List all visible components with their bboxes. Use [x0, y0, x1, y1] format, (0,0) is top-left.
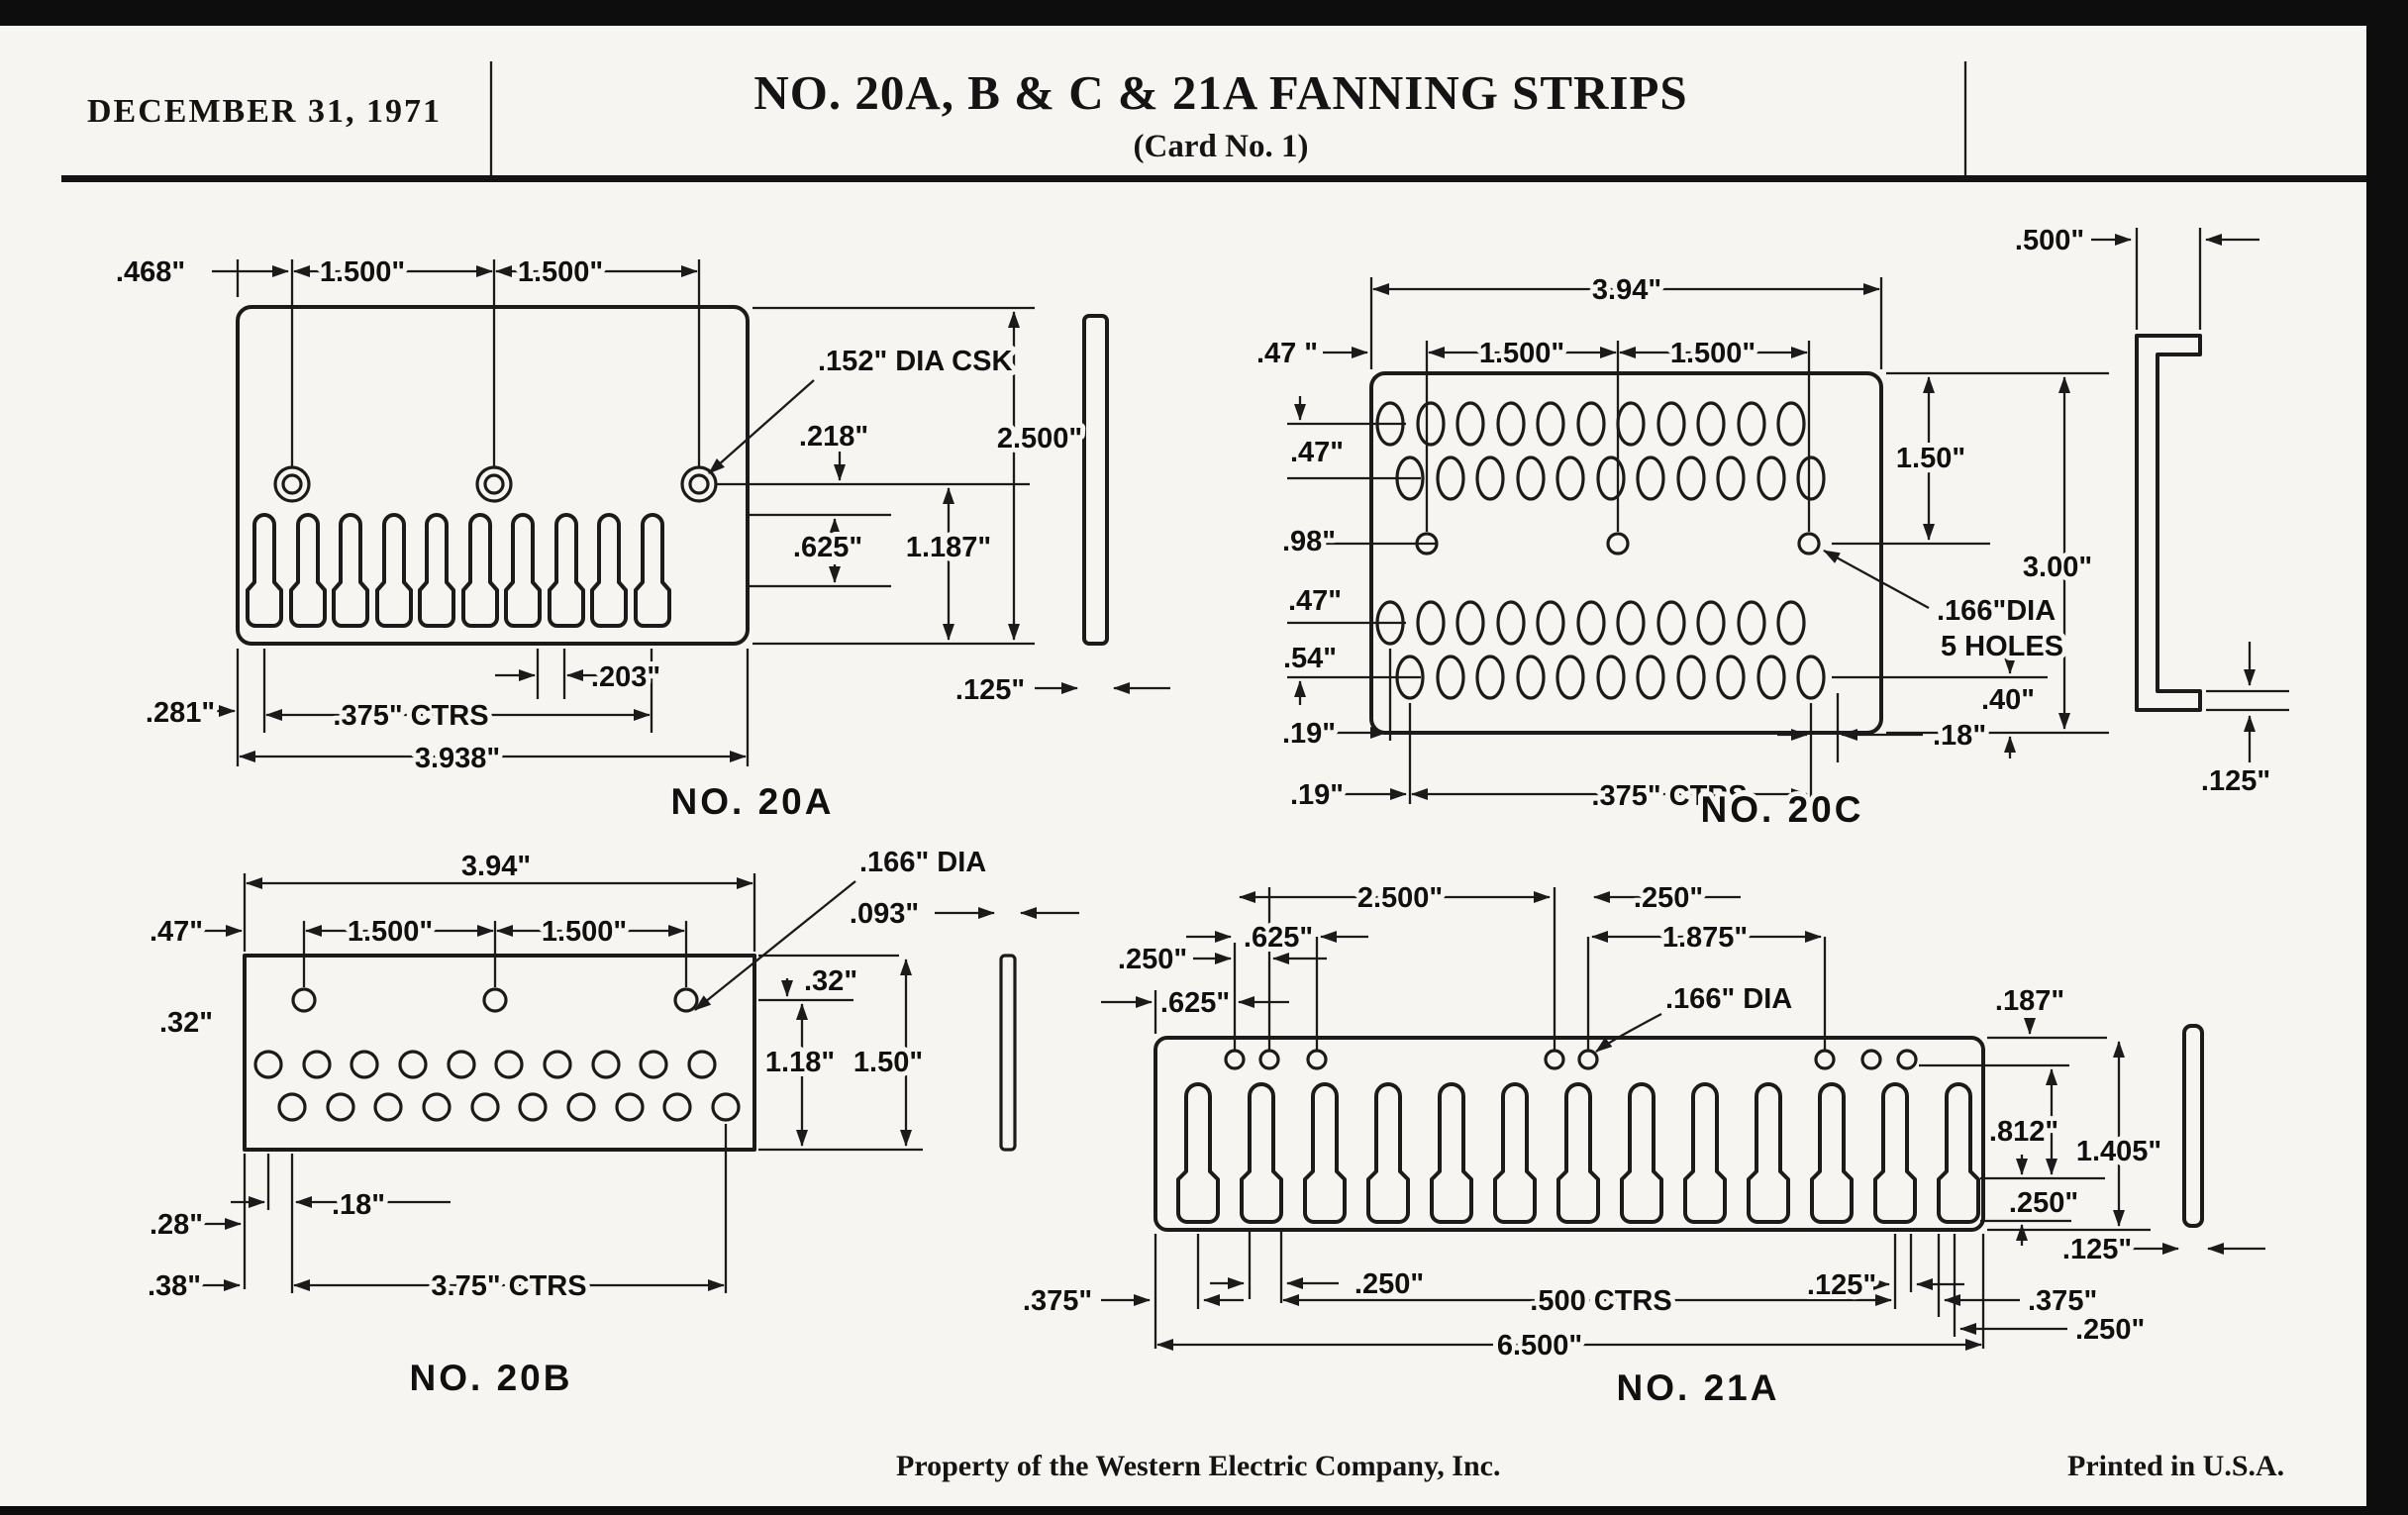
side-view-20b — [1001, 956, 1015, 1150]
mount-holes-20b — [293, 989, 697, 1011]
dim-21a-l625: .625" — [1160, 987, 1230, 1019]
label-no20a: NO. 20A — [671, 781, 835, 822]
page-subtitle: (Card No. 1) — [1134, 129, 1309, 164]
drawing-no20a: .468" 1.500" 1.500" .152" DIA CSK .218" … — [116, 256, 1170, 822]
diagram-canvas: DECEMBER 31, 1971 NO. 20A, B & C & 21A F… — [0, 0, 2408, 1515]
footer-printed-note: Printed in U.S.A. — [2067, 1450, 2284, 1482]
dim-20b-height: 1.50" — [853, 1047, 923, 1078]
dims-21a — [1101, 887, 2265, 1349]
dim-20c-dia-line2: 5 HOLES — [1941, 631, 2063, 662]
comb-slots-21a — [1178, 1084, 1978, 1222]
hole-row-top-20b — [255, 1052, 715, 1077]
label-no20c: NO. 20C — [1701, 789, 1864, 830]
dim-20a-slot-depth: .625" — [793, 532, 862, 563]
scan-edge-top — [0, 0, 2408, 26]
dim-21a-dia: .166" DIA — [1665, 983, 1792, 1015]
dim-21a-t250: .250" — [2009, 1187, 2078, 1219]
csk-holes-20a — [275, 467, 716, 501]
dim-21a-ctrs: .500 CTRS — [1530, 1285, 1671, 1317]
dim-21a-c187: .187" — [1995, 985, 2064, 1017]
dim-20a-hole-drop: .218" — [799, 421, 868, 453]
dim-20c-dia-line1: .166"DIA — [1937, 595, 2056, 627]
footer: Property of the Western Electric Company… — [896, 1450, 2284, 1482]
dim-20b-pitch2: 1.500" — [542, 916, 627, 948]
dim-20a-width: 3.938" — [415, 743, 500, 774]
mount-holes-20c — [1417, 534, 1819, 554]
dim-20c-width: 3.94" — [1592, 274, 1661, 306]
comb-slots-20a — [248, 515, 669, 626]
page-title: NO. 20A, B & C & 21A FANNING STRIPS — [753, 65, 1687, 120]
dim-20c-row3: .47" — [1288, 585, 1342, 617]
dim-20a-edge-margin: .281" — [146, 697, 215, 729]
dim-20b-dia: .166" DIA — [859, 847, 986, 878]
dim-21a-width: 6.500" — [1497, 1330, 1582, 1362]
dim-21a-br250: .250" — [2075, 1314, 2145, 1346]
dim-21a-b250: .250" — [1354, 1268, 1424, 1300]
dim-20c-b18: .18" — [1933, 720, 1986, 752]
dim-20c-row1: .47" — [1290, 437, 1344, 468]
dim-20c-pitch2: 1.500" — [1670, 338, 1756, 369]
dim-20b-row-offset: .32" — [159, 1007, 213, 1039]
side-view-20a — [1084, 316, 1107, 644]
hole-row-bottom-20b — [279, 1094, 739, 1120]
dim-21a-br375: .375" — [2028, 1285, 2097, 1317]
dim-20a-comb-depth: 1.187" — [906, 532, 991, 563]
scan-edge-bottom — [0, 1506, 2408, 1515]
dim-21a-s1875: 1.875" — [1662, 922, 1748, 954]
dim-20c-row4: .54" — [1283, 643, 1337, 674]
drawing-no20c: 3.94" .47 " 1.500" 1.500" .500" .47" .98… — [1256, 225, 2289, 830]
dim-20c-pitch1: 1.500" — [1479, 338, 1564, 369]
dim-20c-b40: .40" — [1981, 684, 2035, 716]
dim-20b-thickness: .093" — [850, 898, 919, 930]
dim-21a-bl375: .375" — [1023, 1285, 1092, 1317]
side-view-20c — [2137, 336, 2200, 710]
dim-21a-u625: .625" — [1244, 922, 1313, 954]
dim-20c-upper-height: 1.50" — [1896, 443, 1965, 474]
dim-20c-thickness: .125" — [2201, 765, 2270, 797]
date-label: DECEMBER 31, 1971 — [87, 93, 442, 130]
dim-20a-ctrs: .375" CTRS — [333, 700, 488, 732]
dim-20a-left-offset: .468" — [116, 256, 185, 288]
dim-20b-ctrs: 3.75" CTRS — [431, 1270, 586, 1302]
dim-20b-b38: .38" — [148, 1270, 201, 1302]
oval-slots-20c — [1377, 403, 1824, 698]
header: DECEMBER 31, 1971 NO. 20A, B & C & 21A F… — [61, 61, 2366, 182]
dim-20c-col1: .19" — [1282, 718, 1336, 750]
drawing-sheet: DECEMBER 31, 1971 NO. 20A, B & C & 21A F… — [0, 0, 2408, 1515]
dim-21a-b125: .125" — [1807, 1269, 1876, 1301]
dim-20c-left-margin: .47 " — [1256, 338, 1318, 369]
dim-20c-row2: .98" — [1282, 526, 1336, 557]
dim-21a-thickness: .125" — [2062, 1234, 2132, 1265]
dim-20c-col2: .19" — [1290, 779, 1344, 811]
footer-property-note: Property of the Western Electric Company… — [896, 1450, 1500, 1482]
dim-21a-height: 1.405" — [2076, 1136, 2161, 1167]
dim-21a-s2500: 2.500" — [1357, 882, 1443, 914]
dim-20b-left-margin: .47" — [150, 916, 203, 948]
drawing-no21a: 2.500" .250" .625" 1.875" .250" .625" .1… — [1023, 882, 2265, 1408]
dim-20b-pitch1: 1.500" — [348, 916, 433, 948]
dim-20a-pitch1: 1.500" — [320, 256, 405, 288]
dim-20b-b28: .28" — [150, 1209, 203, 1241]
dims-20c — [1287, 228, 2289, 804]
dims-20b — [194, 873, 1079, 1293]
drawing-no20b: 3.94" .47" 1.500" 1.500" .166" DIA .093"… — [148, 847, 1079, 1398]
dim-20b-b18: .18" — [332, 1189, 385, 1221]
dim-20c-height: 3.00" — [2023, 552, 2092, 583]
dim-20a-height: 2.500" — [997, 423, 1082, 454]
dim-21a-s812: .812" — [1989, 1116, 2058, 1148]
side-view-21a — [2184, 1026, 2202, 1226]
dim-21a-l250: .250" — [1118, 944, 1187, 975]
dim-20a-slot-gap: .203" — [591, 661, 660, 693]
header-rule — [61, 175, 2366, 182]
scan-edge-right — [2366, 0, 2408, 1515]
dim-20a-thickness: .125" — [955, 674, 1025, 706]
dim-20a-csk-callout: .152" DIA CSK — [818, 346, 1012, 377]
dim-20a-pitch2: 1.500" — [518, 256, 603, 288]
dim-20b-width: 3.94" — [461, 851, 531, 882]
label-no21a: NO. 21A — [1617, 1367, 1780, 1408]
label-no20b: NO. 20B — [410, 1358, 573, 1398]
holes-21a — [1226, 1051, 1916, 1068]
dim-21a-r250: .250" — [1634, 882, 1703, 914]
dim-20c-flange: .500" — [2015, 225, 2084, 256]
dim-20b-top-offset: .32" — [804, 965, 857, 997]
dim-20b-inner-height: 1.18" — [765, 1047, 835, 1078]
